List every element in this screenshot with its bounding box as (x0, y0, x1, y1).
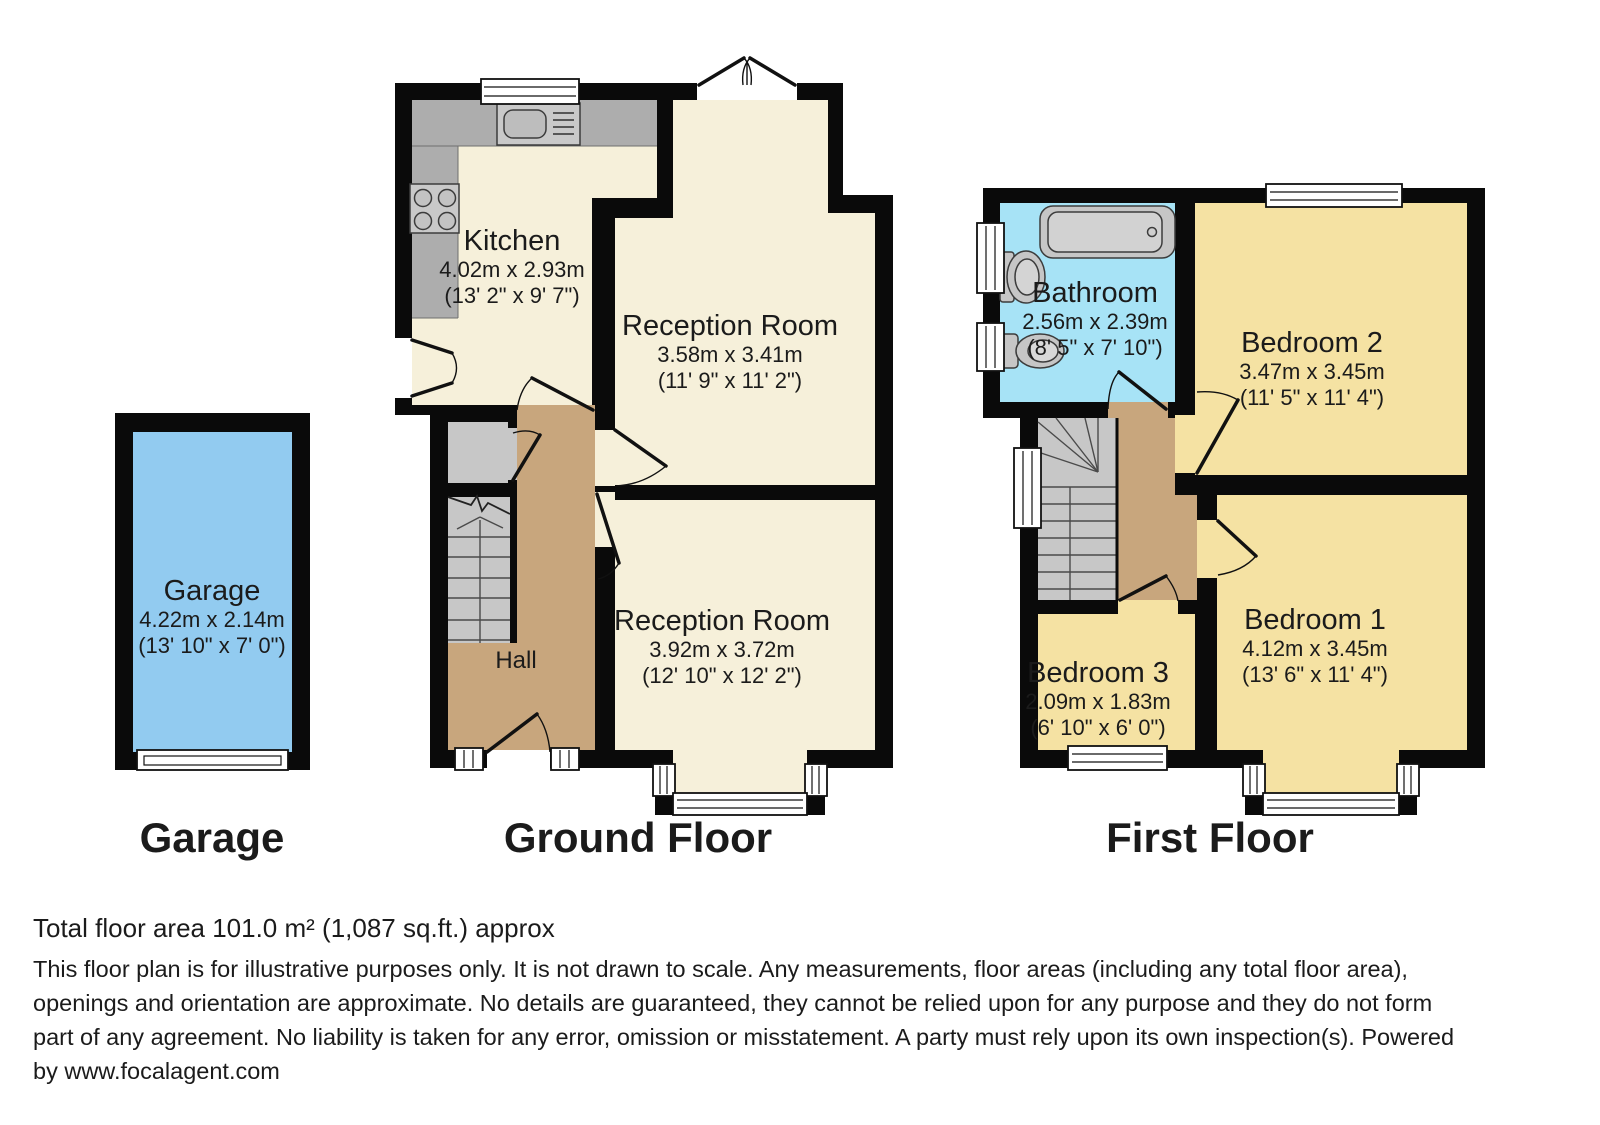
bay-side-window (1243, 764, 1265, 796)
bay-side-window (1397, 764, 1419, 796)
window-frame (977, 223, 1004, 293)
window-frame (1068, 746, 1167, 770)
bedroom3-imperial: (6' 10" x 6' 0") (1030, 715, 1165, 740)
ground-floor-plan: Kitchen 4.02m x 2.93m (13' 2" x 9' 7") R… (395, 58, 893, 815)
bathroom-metric: 2.56m x 2.39m (1022, 309, 1168, 334)
bedroom3-window (1068, 746, 1167, 770)
kitchen-window (481, 79, 579, 104)
kitchen-metric: 4.02m x 2.93m (439, 257, 585, 282)
garage-room-imperial: (13' 10" x 7' 0") (138, 633, 286, 658)
bedroom1-name: Bedroom 1 (1244, 604, 1386, 636)
reception1-imperial: (11' 9" x 11' 2") (658, 368, 802, 393)
hall-name: Hall (495, 647, 536, 674)
hob-ring (439, 190, 456, 207)
cupboard-floor (448, 422, 508, 483)
bathroom-window-upper (977, 223, 1004, 293)
bedroom1-door-gap (1197, 520, 1217, 578)
window-frame (455, 748, 483, 770)
reception2-name: Reception Room (614, 605, 830, 637)
bedroom2-metric: 3.47m x 3.45m (1239, 359, 1385, 384)
garage-plan: Garage 4.22m x 2.14m (13' 10" x 7' 0") (115, 413, 310, 770)
hob-ring (439, 213, 456, 230)
garage-caption: Garage (140, 814, 285, 861)
bay-side-window (805, 764, 827, 796)
ground-floor-caption: Ground Floor (504, 814, 772, 861)
bedroom2-imperial: (11' 5" x 11' 4") (1240, 385, 1384, 410)
garage-door (137, 750, 288, 770)
stair-well (448, 497, 510, 643)
bathroom-name: Bathroom (1032, 277, 1158, 309)
total-floor-area: Total floor area 101.0 m² (1,087 sq.ft.)… (33, 913, 555, 943)
bay-side-window (653, 764, 675, 796)
disclaimer-line-3: part of any agreement. No liability is t… (33, 1024, 1454, 1050)
disclaimer-line-2: openings and orientation are approximate… (33, 990, 1432, 1016)
bath-inner (1048, 212, 1162, 252)
first-staircase (1038, 418, 1117, 600)
kitchen-imperial: (13' 2" x 9' 7") (444, 283, 579, 308)
floorplan-page: Garage 4.22m x 2.14m (13' 10" x 7' 0") (0, 0, 1600, 1120)
bathroom-window-lower (977, 323, 1004, 371)
bay-front-window (1263, 793, 1399, 815)
hob-ring (415, 213, 432, 230)
bedroom2-name: Bedroom 2 (1241, 327, 1383, 359)
disclaimer-line-4: by www.focalagent.com (33, 1058, 280, 1084)
bedroom3-name: Bedroom 3 (1027, 657, 1169, 689)
garage-room-metric: 4.22m x 2.14m (139, 607, 285, 632)
hob-ring (415, 190, 432, 207)
sink-icon (497, 103, 580, 145)
kitchen-side-door-gap (395, 338, 412, 398)
window-frame (551, 748, 579, 770)
bedroom2-door-gap (1175, 415, 1197, 473)
landing-window (1014, 448, 1041, 528)
front-sidelight-left (455, 748, 483, 770)
bedroom3-metric: 2.09m x 1.83m (1025, 689, 1171, 714)
bedroom1-metric: 4.12m x 3.45m (1242, 636, 1388, 661)
floorplan-canvas: Garage 4.22m x 2.14m (13' 10" x 7' 0") (0, 0, 1600, 1120)
bedroom3-door-gap (1118, 600, 1178, 614)
reception1-name: Reception Room (622, 310, 838, 342)
garage-door-inner (144, 756, 281, 765)
disclaimer-line-1: This floor plan is for illustrative purp… (33, 956, 1408, 982)
garage-room-name: Garage (164, 575, 261, 607)
window-frame (1014, 448, 1041, 528)
bay-front-window (673, 793, 807, 815)
bedroom1-bay-floor (1263, 750, 1399, 797)
bedroom1-imperial: (13' 6" x 11' 4") (1242, 662, 1388, 687)
reception2-bay-floor (673, 750, 807, 797)
bedroom2-window (1266, 184, 1402, 207)
hob-icon (410, 184, 459, 233)
bathtub-icon (1040, 206, 1175, 258)
bathroom-imperial: (8' 5" x 7' 10") (1027, 335, 1162, 360)
window-frame (481, 79, 579, 104)
sink-bowl (504, 110, 546, 138)
reception2-imperial: (12' 10" x 12' 2") (642, 663, 802, 688)
front-door-gap (487, 750, 550, 768)
reception1-door-gap (595, 430, 615, 486)
bath-drain (1148, 228, 1157, 237)
kitchen-name: Kitchen (464, 225, 561, 257)
window-frame (1266, 184, 1402, 207)
front-sidelight-right (551, 748, 579, 770)
french-door-gap (697, 83, 797, 100)
first-floor-plan: Bathroom 2.56m x 2.39m (8' 5" x 7' 10") … (977, 184, 1485, 815)
reception1-metric: 3.58m x 3.41m (657, 342, 803, 367)
first-floor-caption: First Floor (1106, 814, 1314, 861)
reception2-metric: 3.92m x 3.72m (649, 637, 795, 662)
window-frame (977, 323, 1004, 371)
ground-staircase (448, 496, 510, 643)
